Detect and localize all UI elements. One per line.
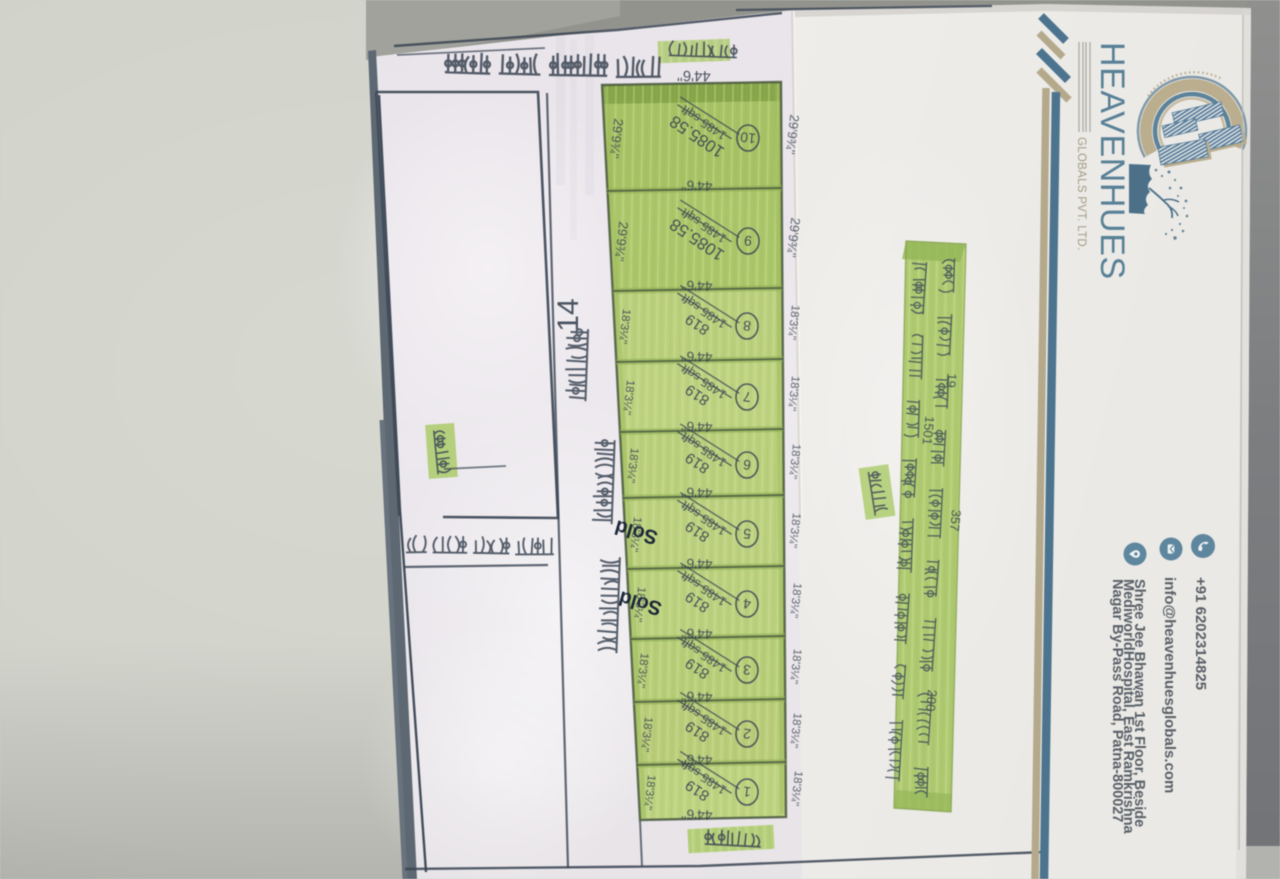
svg-text:1501: 1501 <box>920 415 938 445</box>
svg-text:357: 357 <box>947 509 964 532</box>
svg-text:44'6'': 44'6'' <box>681 806 713 823</box>
svg-text:14: 14 <box>552 298 585 331</box>
svg-text:HEAVENHUES: HEAVENHUES <box>1093 42 1131 280</box>
svg-text:44'6'': 44'6'' <box>681 177 713 194</box>
svg-text:10: 10 <box>739 129 757 147</box>
svg-text:19: 19 <box>943 372 959 388</box>
svg-text:44'6'': 44'6'' <box>681 277 713 294</box>
svg-text:GLOBALS PVT. LTD.: GLOBALS PVT. LTD. <box>1075 137 1087 251</box>
svg-text:44'6'': 44'6'' <box>677 67 711 85</box>
svg-text:+91 6202314825: +91 6202314825 <box>1192 577 1209 690</box>
svg-text:info@heavenhuesglobals.com: info@heavenhuesglobals.com <box>1161 577 1178 793</box>
svg-text:Nagar By-Pass Road, Patna-8000: Nagar By-Pass Road, Patna-800027 <box>1109 579 1125 822</box>
svg-text:200: 200 <box>923 689 940 712</box>
svg-text:44'6'': 44'6'' <box>681 484 713 501</box>
